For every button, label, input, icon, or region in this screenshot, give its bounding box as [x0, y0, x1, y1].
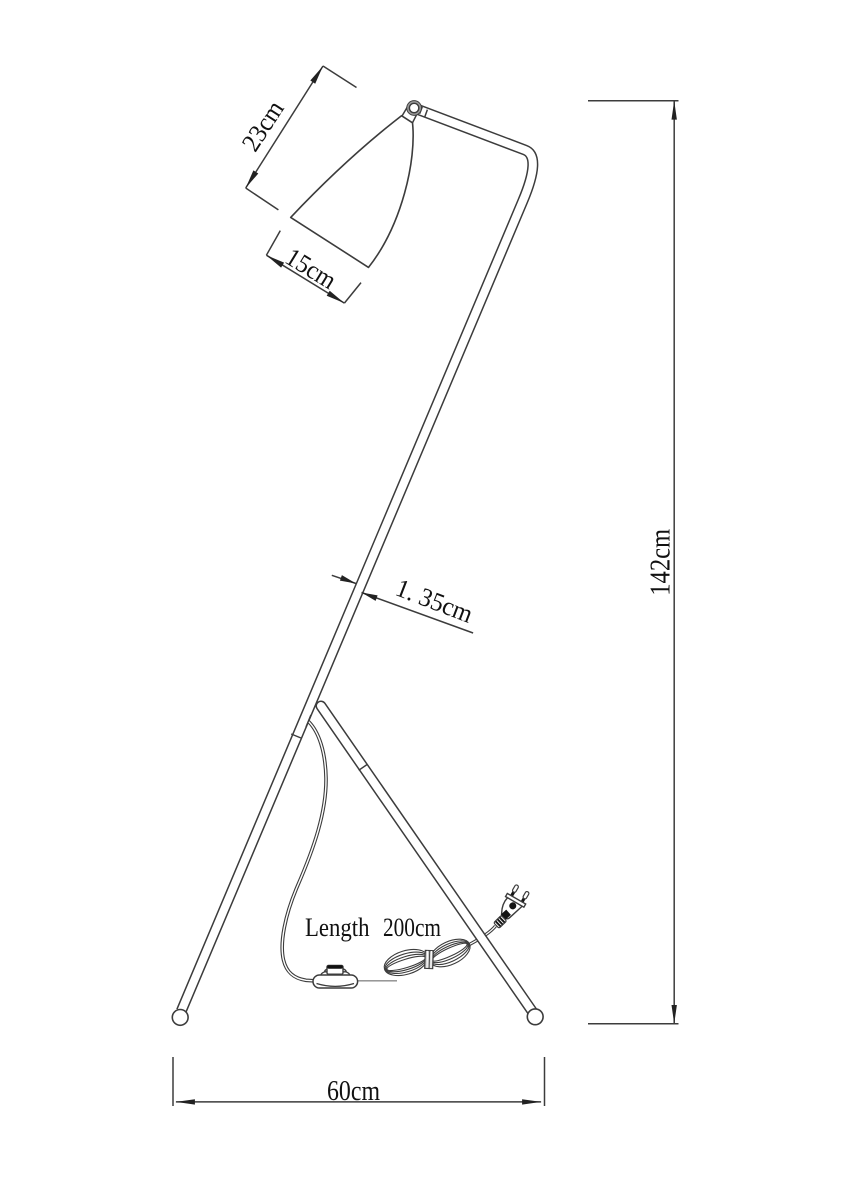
svg-text:15cm: 15cm — [280, 242, 341, 295]
svg-text:1. 35cm: 1. 35cm — [392, 573, 477, 629]
svg-text:200cm: 200cm — [383, 913, 441, 942]
svg-text:60cm: 60cm — [327, 1076, 380, 1107]
svg-text:142cm: 142cm — [646, 529, 677, 596]
svg-text:Length: Length — [305, 913, 370, 942]
svg-text:23cm: 23cm — [236, 95, 290, 156]
